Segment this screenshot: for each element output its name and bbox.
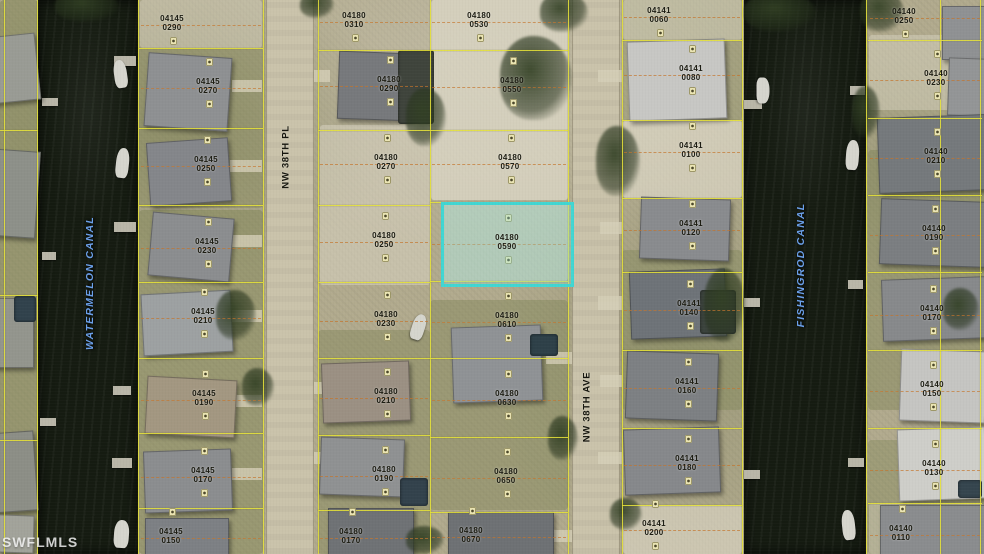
parcel-line-vertical (980, 0, 981, 554)
parcel-lot-number: 0250 (882, 17, 926, 26)
parcel-line-vertical (430, 0, 431, 554)
parcel-line-horizontal (318, 205, 430, 206)
lot-marker (384, 368, 391, 376)
tree-canopy (300, 0, 334, 18)
parcel-label: 041800530 (457, 12, 501, 29)
parcel-lot-number: 0650 (484, 477, 528, 486)
lot-marker (469, 507, 476, 515)
parcel-label: 041400150 (910, 381, 954, 398)
boat (757, 78, 770, 104)
lot-marker (505, 412, 512, 420)
parcel-label: 041400110 (879, 525, 923, 542)
parcel-lot-number: 0290 (150, 24, 194, 33)
tree-canopy (406, 88, 446, 146)
parcel-label: 041450190 (182, 390, 226, 407)
lot-marker (382, 254, 389, 262)
parcel-line-vertical (37, 0, 38, 554)
parcel-line-horizontal (0, 440, 38, 441)
lot-marker (205, 260, 212, 268)
lot-marker (689, 200, 696, 208)
lot-marker (932, 482, 939, 490)
parcel-lot-number: 0210 (914, 157, 958, 166)
lot-marker (934, 50, 941, 58)
lot-marker (384, 410, 391, 418)
driveway (232, 80, 262, 92)
parcel-label: 041450210 (181, 308, 225, 325)
lot-marker (930, 327, 937, 335)
lot-marker (685, 435, 692, 443)
parcel-line-vertical (263, 0, 264, 554)
house-roof (0, 148, 41, 238)
lot-marker (657, 29, 664, 37)
parcel-lot-number: 0570 (488, 163, 532, 172)
parcel-line-horizontal (868, 428, 982, 429)
parcel-label: 041800250 (362, 232, 406, 249)
parcel-label: 041410160 (665, 378, 709, 395)
parcel-label: 041450290 (150, 15, 194, 32)
parcel-label: 041410140 (667, 300, 711, 317)
parcel-lot-number: 0590 (485, 243, 529, 252)
parcel-line-horizontal (318, 50, 430, 51)
lot-marker (508, 134, 515, 142)
lot-marker (201, 288, 208, 296)
boat-dock (112, 458, 132, 468)
street-surface (266, 0, 314, 554)
driveway (598, 452, 622, 464)
parcel-line-horizontal (622, 198, 742, 199)
parcel-lot-number: 0170 (329, 537, 373, 546)
parcel-line-vertical (866, 0, 867, 554)
lot-marker (204, 136, 211, 144)
driveway (232, 235, 262, 247)
house-roof (0, 33, 41, 105)
parcel-line-vertical (622, 0, 623, 554)
lot-marker (932, 247, 939, 255)
parcel-line-horizontal (622, 40, 742, 41)
lot-marker (652, 542, 659, 550)
parcel-lot-number: 0120 (669, 229, 713, 238)
parcel-label: 041450270 (186, 78, 230, 95)
lot-marker (689, 122, 696, 130)
lot-marker (687, 322, 694, 330)
parcel-lot-number: 0160 (665, 387, 709, 396)
boat-dock (848, 458, 864, 467)
parcel-label: 041410100 (669, 142, 713, 159)
lot-marker (384, 176, 391, 184)
parcel-lot-number: 0080 (669, 74, 713, 83)
parcel-label: 041400170 (910, 305, 954, 322)
parcel-line-vertical (742, 0, 743, 554)
parcel-lot-number: 0170 (910, 314, 954, 323)
parcel-lot-number: 0310 (332, 21, 376, 30)
parcel-line-horizontal (430, 512, 568, 513)
parcel-lot-number: 0250 (184, 165, 228, 174)
parcel-line-horizontal (139, 48, 263, 49)
parcel-line-horizontal (430, 437, 568, 438)
parcel-lot-number: 0270 (186, 87, 230, 96)
lot-marker (689, 87, 696, 95)
lot-marker (206, 58, 213, 66)
parcel-lot-number: 0100 (669, 151, 713, 160)
lot-marker (505, 292, 512, 300)
lot-marker (932, 440, 939, 448)
parcel-lot-number: 0180 (665, 464, 709, 473)
lot-marker (349, 508, 356, 516)
lot-marker (201, 489, 208, 497)
parcel-line-vertical (138, 0, 139, 554)
lot-marker (169, 508, 176, 516)
lot-marker (685, 400, 692, 408)
lot-marker (930, 403, 937, 411)
lot-marker (689, 164, 696, 172)
parcel-lot-number: 0630 (485, 399, 529, 408)
lot-marker (387, 56, 394, 64)
parcel-lot-number: 0230 (185, 247, 229, 256)
lot-marker (899, 505, 906, 513)
boat-dock (42, 252, 56, 260)
parcel-label: 041410060 (637, 7, 681, 24)
watermark: SWFLMLS (2, 534, 78, 550)
lot-marker (505, 334, 512, 342)
lot-marker (382, 212, 389, 220)
aerial-map: SWFLMLS 04145029004145027004145025004145… (0, 0, 984, 554)
parcel-lot-number: 0230 (914, 79, 958, 88)
parcel-label: 041410200 (632, 520, 676, 537)
tree-canopy (596, 126, 640, 196)
parcel-line-horizontal (430, 358, 568, 359)
parcel-lot-number: 0170 (181, 476, 225, 485)
parcel-label: 041800170 (329, 528, 373, 545)
parcel-label: 041800550 (490, 77, 534, 94)
boat-dock (114, 222, 136, 232)
lot-marker (689, 45, 696, 53)
lot-marker (387, 98, 394, 106)
house-roof (947, 57, 984, 116)
parcel-label: 041800570 (488, 154, 532, 171)
parcel-line-horizontal (318, 130, 430, 131)
parcel-line-horizontal (622, 350, 742, 351)
lot-marker (477, 34, 484, 42)
lot-marker (685, 358, 692, 366)
canal-label: WATERMELON CANAL (84, 216, 96, 350)
lot-marker (384, 291, 391, 299)
house-roof (145, 376, 238, 439)
parcel-label: 041410120 (669, 220, 713, 237)
sand-patch (623, 120, 742, 198)
boat-dock (40, 418, 56, 426)
driveway (314, 70, 330, 82)
lot-marker (685, 477, 692, 485)
parcel-line-horizontal (318, 435, 430, 436)
lot-marker (201, 447, 208, 455)
lot-marker (510, 99, 517, 107)
parcel-lot-number: 0190 (362, 475, 406, 484)
parcel-label: 041400250 (882, 8, 926, 25)
lot-marker (352, 34, 359, 42)
parcel-line-horizontal (0, 130, 38, 131)
street-label: NW 38TH PL (281, 125, 292, 188)
parcel-label: 041400190 (912, 225, 956, 242)
parcel-label: 041800310 (332, 12, 376, 29)
driveway (598, 70, 622, 82)
tree-canopy (548, 416, 578, 460)
lot-marker (930, 285, 937, 293)
lot-marker (384, 134, 391, 142)
house-roof (942, 6, 984, 60)
parcel-label: 041450170 (181, 467, 225, 484)
lot-marker (202, 370, 209, 378)
parcel-label: 041800190 (362, 466, 406, 483)
parcel-line-horizontal (868, 272, 982, 273)
lot-marker (204, 178, 211, 186)
parcel-lot-number: 0190 (182, 399, 226, 408)
lot-marker (201, 330, 208, 338)
lot-marker (382, 446, 389, 454)
parcel-line-horizontal (318, 510, 430, 511)
parcel-lot-number: 0150 (910, 390, 954, 399)
parcel-line-horizontal (622, 505, 742, 506)
parcel-line-horizontal (868, 40, 982, 41)
parcel-label: 041450230 (185, 238, 229, 255)
house-roof (0, 430, 39, 513)
parcel-line-horizontal (868, 503, 982, 504)
lot-marker (934, 170, 941, 178)
street-surface (572, 0, 620, 554)
swimming-pool (530, 334, 558, 356)
lot-marker (687, 280, 694, 288)
parcel-label: 041800230 (364, 311, 408, 328)
boat-dock (113, 386, 131, 395)
parcel-label: 041800650 (484, 468, 528, 485)
canal-label: FISHINGROD CANAL (795, 203, 807, 328)
driveway (600, 222, 622, 234)
boat (845, 140, 860, 171)
driveway (600, 375, 622, 387)
parcel-line-horizontal (0, 295, 38, 296)
parcel-lot-number: 0610 (485, 321, 529, 330)
lot-marker (170, 37, 177, 45)
parcel-line-vertical (318, 0, 319, 554)
parcel-label: 041400230 (914, 70, 958, 87)
lot-marker (902, 30, 909, 38)
parcel-line-horizontal (622, 120, 742, 121)
lot-marker (652, 500, 659, 508)
swimming-pool (14, 296, 36, 322)
lot-marker (504, 448, 511, 456)
parcel-lot-number: 0250 (362, 241, 406, 250)
parcel-label: 041410080 (669, 65, 713, 82)
parcel-lot-number: 0130 (912, 469, 956, 478)
parcel-line-horizontal (139, 433, 263, 434)
parcel-line-horizontal (139, 205, 263, 206)
parcel-line-horizontal (139, 358, 263, 359)
lot-marker (382, 488, 389, 496)
boat (113, 520, 130, 549)
parcel-line-horizontal (318, 282, 430, 283)
parcel-lot-number: 0670 (449, 536, 493, 545)
parcel-line-horizontal (868, 195, 982, 196)
parcel-label: 041800290 (367, 76, 411, 93)
parcel-line-horizontal (868, 350, 982, 351)
tree-canopy (406, 526, 444, 554)
parcel-label: 041400130 (912, 460, 956, 477)
parcel-line-horizontal (139, 282, 263, 283)
parcel-lot-number: 0230 (364, 320, 408, 329)
boat-dock (42, 98, 58, 106)
parcel-lot-number: 0140 (667, 309, 711, 318)
boat-dock (848, 280, 863, 289)
parcel-line-horizontal (430, 50, 568, 51)
parcel-lot-number: 0270 (364, 163, 408, 172)
lot-marker (384, 333, 391, 341)
lot-marker (689, 242, 696, 250)
parcel-label: 041800610 (485, 312, 529, 329)
parcel-lot-number: 0550 (490, 86, 534, 95)
parcel-line-horizontal (868, 118, 982, 119)
lot-marker (205, 218, 212, 226)
parcel-label: 041800630 (485, 390, 529, 407)
lot-marker (934, 128, 941, 136)
parcel-line-horizontal (430, 130, 568, 131)
lot-marker (510, 57, 517, 65)
parcel-line-horizontal (139, 508, 263, 509)
parcel-label: 041400210 (914, 148, 958, 165)
parcel-label: 041800590 (485, 234, 529, 251)
lot-marker (202, 412, 209, 420)
lot-marker (932, 205, 939, 213)
boat-dock (744, 470, 760, 479)
parcel-lot-number: 0210 (181, 317, 225, 326)
lot-marker (934, 92, 941, 100)
driveway (598, 296, 622, 310)
parcel-label: 041450250 (184, 156, 228, 173)
parcel-line-horizontal (139, 128, 263, 129)
parcel-lot-number: 0530 (457, 21, 501, 30)
lot-marker (930, 361, 937, 369)
parcel-lot-number: 0110 (879, 534, 923, 543)
lot-marker (505, 370, 512, 378)
parcel-line-vertical (4, 0, 5, 554)
parcel-lot-number: 0200 (632, 529, 676, 538)
parcel-line-horizontal (622, 428, 742, 429)
parcel-lot-number: 0210 (364, 397, 408, 406)
parcel-label: 041800210 (364, 388, 408, 405)
parcel-label: 041450150 (149, 528, 193, 545)
parcel-lot-number: 0060 (637, 16, 681, 25)
parcel-label: 041800670 (449, 527, 493, 544)
parcel-line-horizontal (622, 272, 742, 273)
driveway (232, 468, 262, 480)
parcel-line-horizontal (318, 358, 430, 359)
boat-dock (744, 298, 760, 307)
lot-marker (504, 490, 511, 498)
parcel-lot-number: 0150 (149, 537, 193, 546)
parcel-label: 041800270 (364, 154, 408, 171)
parcel-label: 041410180 (665, 455, 709, 472)
lot-marker (508, 176, 515, 184)
street-label: NW 38TH AVE (582, 372, 593, 443)
swimming-pool (958, 480, 982, 498)
parcel-lot-number: 0290 (367, 85, 411, 94)
parcel-lot-number: 0190 (912, 234, 956, 243)
lot-marker (206, 100, 213, 108)
